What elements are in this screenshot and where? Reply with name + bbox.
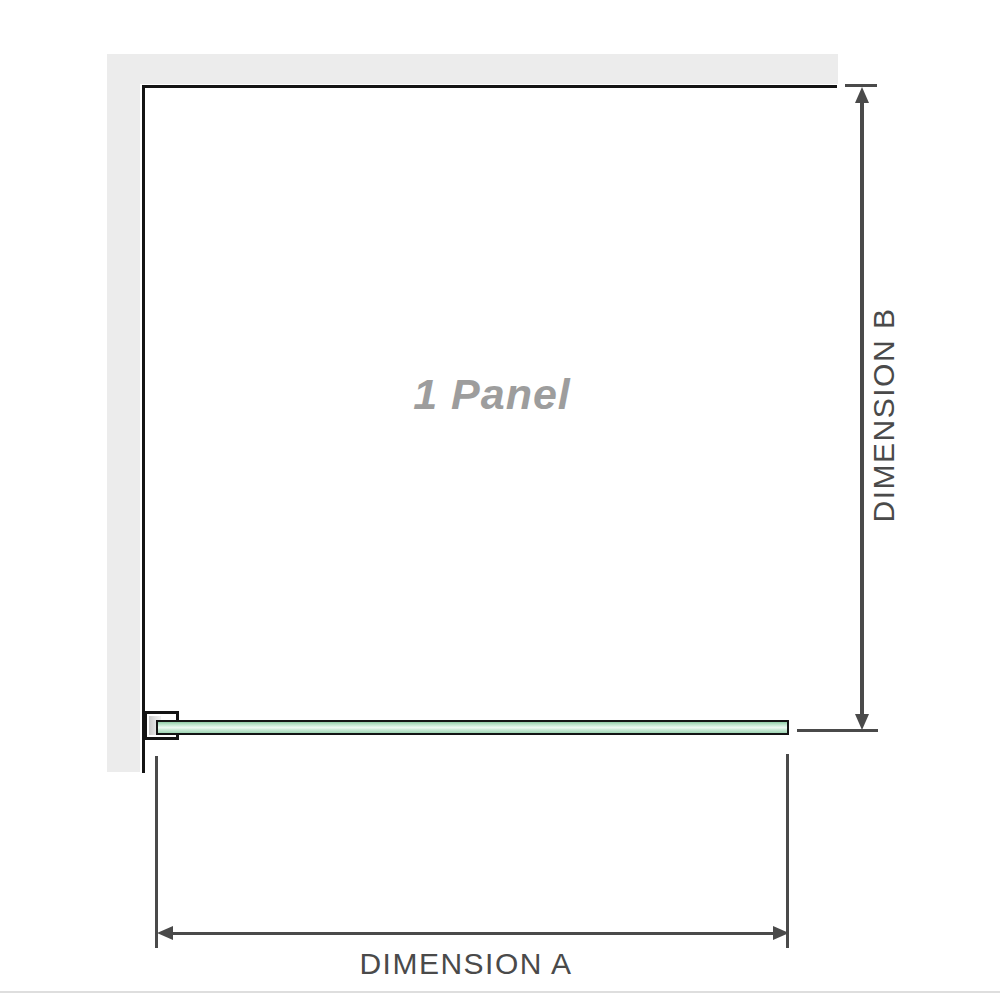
arrow-up-icon bbox=[855, 87, 869, 103]
dimension-b-line bbox=[860, 100, 864, 718]
panel-outline-left bbox=[142, 85, 145, 773]
dimension-a-left-extension bbox=[155, 756, 158, 948]
arrow-down-icon bbox=[855, 714, 869, 730]
bottom-divider bbox=[0, 991, 1000, 993]
wall-top bbox=[107, 54, 838, 84]
arrow-right-icon bbox=[773, 926, 789, 940]
panel-outline-top bbox=[142, 85, 837, 88]
dimension-a-label: DIMENSION A bbox=[359, 947, 572, 981]
glass-panel bbox=[156, 720, 789, 735]
dimension-a-line bbox=[170, 932, 776, 935]
panel-count-label: 1 Panel bbox=[142, 370, 842, 419]
dimension-b-label: DIMENSION B bbox=[867, 308, 901, 523]
dimension-a-right-extension bbox=[786, 754, 789, 948]
arrow-left-icon bbox=[157, 926, 173, 940]
shower-panel-dimension-diagram: 1 Panel DIMENSION B DIMENSION A bbox=[0, 0, 1000, 1000]
wall-left bbox=[107, 54, 140, 772]
